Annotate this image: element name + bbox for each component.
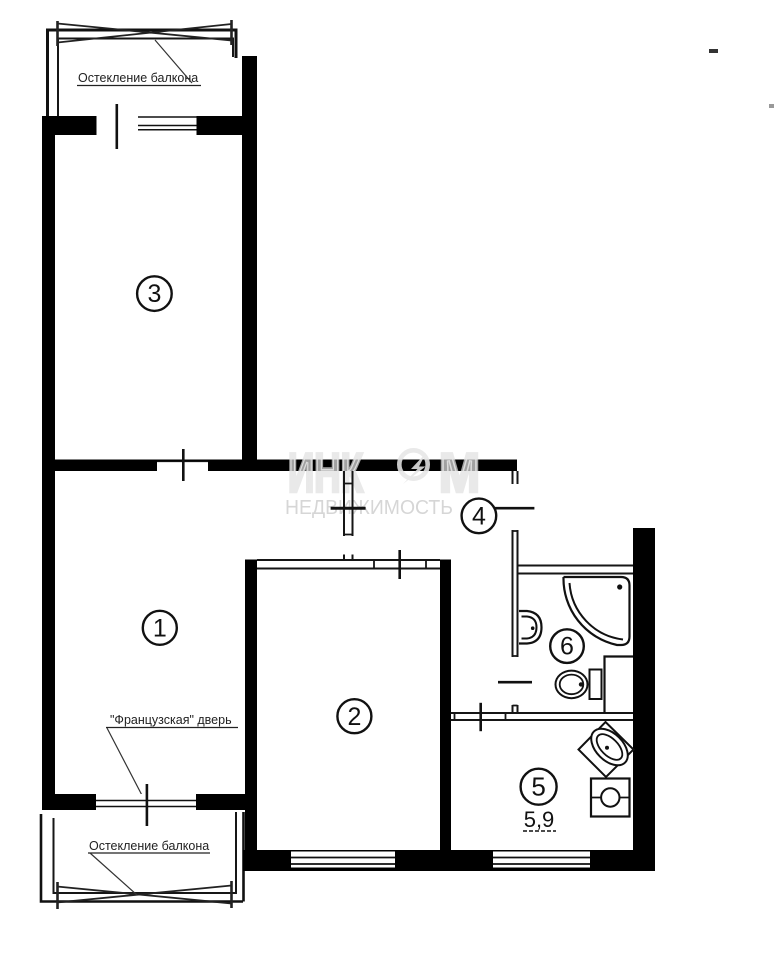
svg-text:3: 3	[147, 280, 161, 308]
svg-text:Остекление балкона: Остекление балкона	[89, 839, 209, 853]
svg-text:НЕДВИЖИМОСТЬ: НЕДВИЖИМОСТЬ	[285, 497, 453, 519]
svg-text:5: 5	[531, 772, 545, 802]
svg-text:"Французская" дверь: "Французская" дверь	[110, 713, 232, 727]
svg-text:М: М	[439, 442, 480, 504]
svg-text:4: 4	[472, 503, 486, 531]
svg-text:Остекление балкона: Остекление балкона	[78, 71, 198, 85]
svg-text:2: 2	[347, 703, 361, 731]
svg-text:1: 1	[153, 615, 167, 643]
svg-text:6: 6	[560, 633, 574, 661]
svg-text:5,9: 5,9	[524, 807, 555, 832]
